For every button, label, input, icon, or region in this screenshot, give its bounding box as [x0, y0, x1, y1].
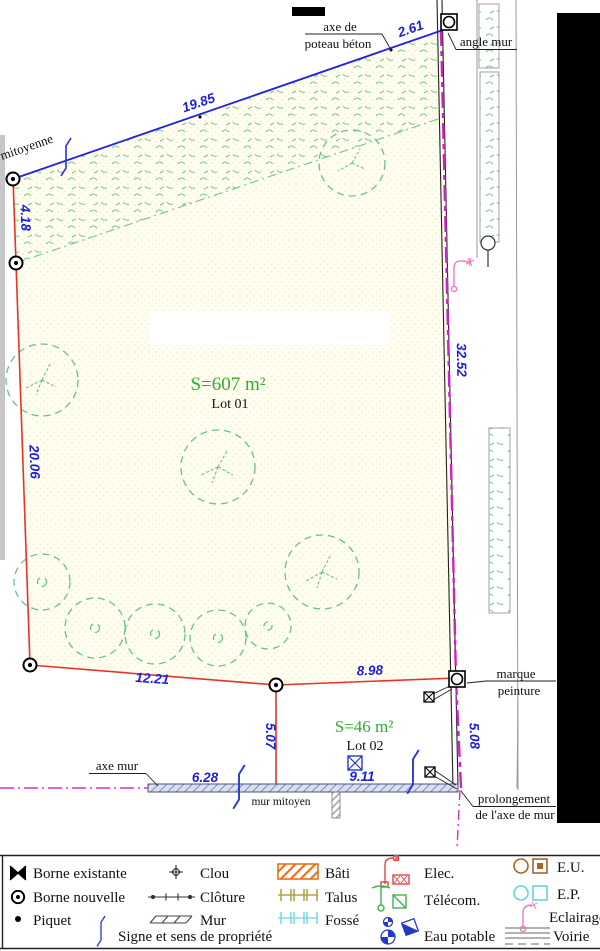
legend-clou: Clou — [200, 866, 230, 882]
legend-eu: E.U. — [557, 860, 585, 876]
dim-12-21: 12.21 — [135, 670, 170, 687]
bati-icon — [278, 864, 318, 879]
redaction-bar-top — [292, 7, 325, 16]
left-edge-wall — [0, 135, 5, 560]
borne-nouvelle-icon — [7, 173, 20, 186]
borne-nouvelle-icon — [270, 679, 283, 692]
legend-mur: Mur — [200, 913, 226, 929]
legend-voirie: Voirie — [553, 929, 590, 945]
dim-9-11: 9.11 — [349, 769, 374, 784]
dim-5-08: 5.08 — [467, 722, 483, 749]
label-mask — [150, 312, 390, 345]
borne-nouvelle-icon — [10, 257, 23, 270]
redaction-bar-right — [557, 13, 600, 823]
marque-label-1: marque — [497, 666, 536, 681]
axe-poteau-label-1: axe de — [323, 19, 357, 34]
wall-stub — [332, 792, 340, 818]
legend-borne-existante: Borne existante — [33, 866, 127, 882]
piquet-icon — [15, 916, 21, 922]
lot2-area: S=46 m² — [335, 717, 394, 736]
marque-label-2: peinture — [498, 683, 541, 698]
angle-mur-point-icon — [441, 14, 457, 30]
street-post-icon — [481, 236, 495, 250]
utility-box-icon — [424, 692, 434, 702]
legend-cloture: Clôture — [200, 890, 245, 906]
water-box-icon — [348, 756, 362, 770]
mur-mitoyen-label: mur mitoyen — [251, 796, 310, 808]
dim-5-07: 5.07 — [263, 723, 278, 751]
legend-piquet: Piquet — [33, 913, 72, 929]
legend-signe: Signe et sens de propriété — [118, 929, 272, 945]
dim-4-18: 4.18 — [18, 203, 34, 231]
dim-32-52: 32.52 — [454, 343, 470, 378]
angle-mur-label: angle mur — [460, 34, 513, 49]
legend-borne-nouvelle: Borne nouvelle — [33, 890, 125, 906]
legend-eau-potable: Eau potable — [424, 929, 496, 945]
utility-box-icon — [425, 767, 435, 777]
dim-6-28: 6.28 — [192, 770, 219, 785]
legend-talus: Talus — [325, 890, 357, 906]
prolongement-label-1: prolongement — [478, 791, 551, 806]
survey-plan: axe de poteau béton angle mur mitoyenne … — [0, 0, 600, 951]
legend-ep: E.P. — [557, 887, 580, 903]
borne-nouvelle-icon — [24, 659, 37, 672]
axe-poteau-label-2: poteau béton — [305, 36, 372, 51]
legend-telecom: Télécom. — [424, 893, 480, 909]
prolongement-label-2: de l'axe de mur — [475, 807, 555, 822]
legend-elec: Elec. — [424, 866, 454, 882]
lot1-area: S=607 m² — [190, 374, 265, 395]
legend-bati: Bâti — [325, 866, 350, 882]
marque-peinture-icon — [449, 671, 465, 687]
dim-20-06: 20.06 — [26, 444, 42, 480]
borne-nouvelle-legend-icon — [12, 891, 24, 903]
dim-8-98: 8.98 — [356, 663, 383, 679]
legend-eclairage: Eclairage — [549, 910, 600, 926]
axe-mur-label: axe mur — [96, 758, 139, 773]
lot1-name: Lot 01 — [212, 397, 249, 412]
legend-fosse: Fossé — [325, 913, 360, 929]
lot2-name: Lot 02 — [347, 739, 384, 754]
